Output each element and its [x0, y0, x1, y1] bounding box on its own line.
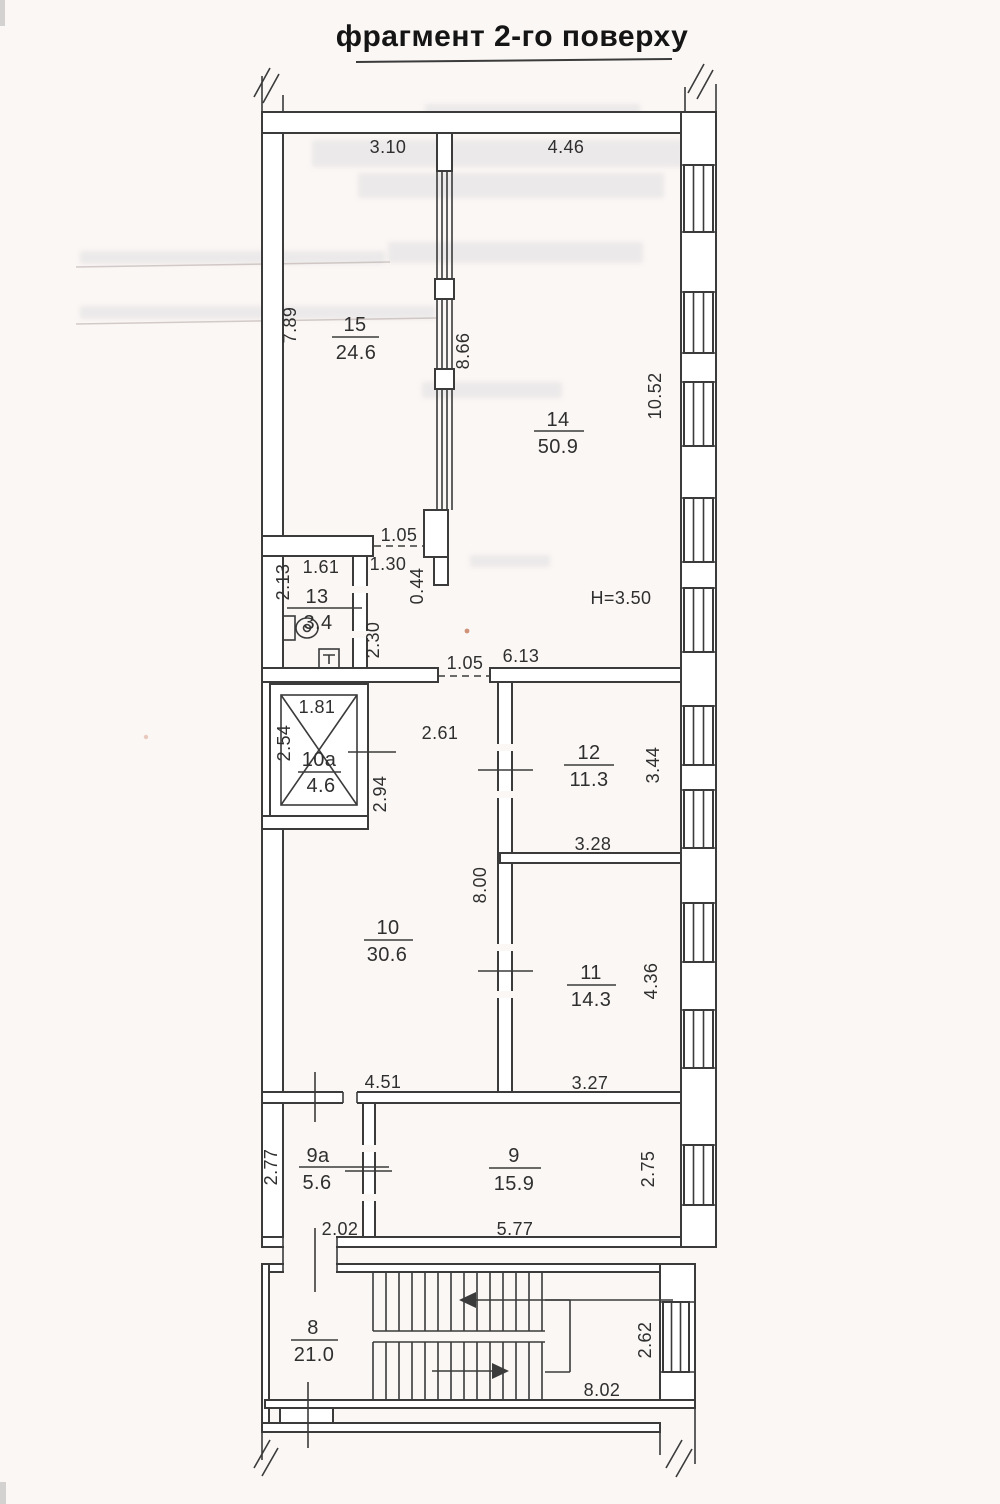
dim-stair-bottom: 8.02 — [584, 1380, 621, 1400]
room13-right-wall — [353, 556, 367, 682]
dim-room13-right: 2.30 — [363, 622, 383, 659]
room-area: 3.4 — [303, 612, 332, 634]
wall-break-top-right — [685, 64, 716, 112]
wall-break-bottom-right — [660, 1408, 695, 1477]
stair-treads-upper — [373, 1272, 542, 1331]
window-icon — [681, 1010, 716, 1068]
window-icon — [681, 498, 716, 562]
room-number: 15 — [343, 314, 366, 336]
window-icon — [681, 292, 716, 353]
dim-corridor-opening: 1.05 — [447, 653, 484, 673]
room-area: 14.3 — [571, 989, 612, 1011]
room-label-10: 10 30.6 — [364, 917, 413, 966]
room-area: 50.9 — [538, 436, 579, 458]
room-number: 8 — [307, 1317, 319, 1339]
room-area: 21.0 — [294, 1344, 335, 1366]
wall-hall-rooms9 — [262, 1072, 681, 1122]
dim-jog-depth: 0.44 — [407, 568, 427, 605]
dim-room9a-left: 2.77 — [261, 1149, 281, 1186]
dim-room9-bottom: 5.77 — [497, 1219, 534, 1239]
dim-room11-bottom: 3.27 — [572, 1073, 609, 1093]
room-label-14: 14 50.9 — [534, 409, 584, 458]
dim-room10-bottom: 4.51 — [365, 1072, 402, 1092]
room-number: 9а — [306, 1145, 330, 1167]
corridor-wall-left — [262, 668, 438, 682]
room-number: 11 — [580, 962, 602, 984]
title-underline — [356, 59, 672, 62]
dim-room13-left: 2.13 — [273, 564, 293, 601]
wall-break-bottom-left — [254, 1432, 278, 1476]
window-icon — [681, 588, 716, 652]
wall-9a-9 — [345, 1103, 392, 1237]
window-icon — [681, 790, 716, 848]
drawing-title: фрагмент 2-го поверху — [336, 20, 689, 53]
sink-icon — [319, 649, 339, 668]
room-area: 30.6 — [367, 944, 408, 966]
bleedthrough-artifacts — [80, 104, 684, 567]
room-label-15: 15 24.6 — [332, 314, 379, 364]
window-icon — [681, 382, 716, 446]
dim-room9-right: 2.75 — [638, 1151, 658, 1188]
dim-room13-top: 1.61 — [303, 557, 340, 577]
dim-room14-top: 4.46 — [548, 137, 585, 157]
dim-partition: 8.66 — [453, 333, 473, 370]
room-area: 11.3 — [569, 769, 608, 791]
room-area: 5.6 — [302, 1172, 331, 1194]
window-icon — [681, 903, 716, 962]
glazed-partition — [424, 133, 454, 585]
stair-mid-wall — [373, 1331, 545, 1342]
right-wall — [681, 112, 716, 1247]
window-icon — [681, 165, 716, 232]
window-icon — [681, 1145, 716, 1205]
ceiling-height-note: H=3.50 — [591, 588, 652, 608]
room-number: 14 — [546, 409, 569, 431]
floor-plan-svg: фрагмент 2-го поверху — [0, 0, 1000, 1504]
staircase — [373, 1272, 673, 1400]
dim-room9a-bottom: 2.02 — [322, 1219, 359, 1239]
dim-hall-gap: 2.61 — [422, 723, 459, 743]
dim-room11-right: 4.36 — [641, 963, 661, 1000]
room-label-11: 11 14.3 — [567, 962, 616, 1011]
dim-room12-bottom: 3.28 — [575, 834, 612, 854]
room15-bottom-wall — [262, 536, 373, 556]
corridor-wall-right — [490, 668, 681, 682]
room-label-8: 8 21.0 — [291, 1317, 338, 1366]
window-icon — [681, 706, 716, 765]
dim-shaft-right: 2.94 — [370, 776, 390, 813]
room-area: 15.9 — [494, 1173, 535, 1195]
room-number: 13 — [305, 586, 328, 608]
dim-stair-right: 2.62 — [635, 1322, 655, 1359]
room-area: 24.6 — [336, 342, 377, 364]
dim-room15-top: 3.10 — [370, 137, 407, 157]
scanned-floor-plan-page: фрагмент 2-го поверху — [0, 0, 1000, 1504]
dim-shaft-left: 2.54 — [274, 725, 294, 762]
stair-landing — [545, 1300, 570, 1372]
wall-12-11 — [500, 853, 681, 863]
dim-corridor-width: 6.13 — [503, 646, 540, 666]
dim-room12-right: 3.44 — [643, 747, 663, 784]
room-area: 4.6 — [306, 775, 335, 797]
stair-arrow-up — [459, 1292, 673, 1308]
room-number: 12 — [577, 742, 600, 764]
dim-wall-10-11: 8.00 — [470, 867, 490, 904]
room-number: 10 — [376, 917, 399, 939]
room-label-13: 13 3.4 — [287, 586, 362, 634]
wall-break-top-left — [254, 68, 283, 112]
dim-jog-width: 1.30 — [370, 554, 407, 574]
partition-mullion — [435, 279, 454, 299]
window-icon — [660, 1302, 695, 1372]
dim-shaft-top: 1.81 — [299, 697, 336, 717]
stair-arrow-down — [432, 1363, 509, 1379]
room-number: 10а — [302, 749, 337, 771]
dim-room15-left: 7.89 — [280, 307, 300, 344]
dim-opening-top: 1.05 — [381, 525, 418, 545]
partition-mullion — [435, 369, 454, 389]
room-number: 9 — [508, 1145, 520, 1167]
dim-right-wall-upper: 10.52 — [645, 372, 665, 419]
room-label-9: 9 15.9 — [489, 1145, 541, 1195]
top-wall — [262, 112, 716, 133]
room-label-12: 12 11.3 — [564, 742, 614, 791]
